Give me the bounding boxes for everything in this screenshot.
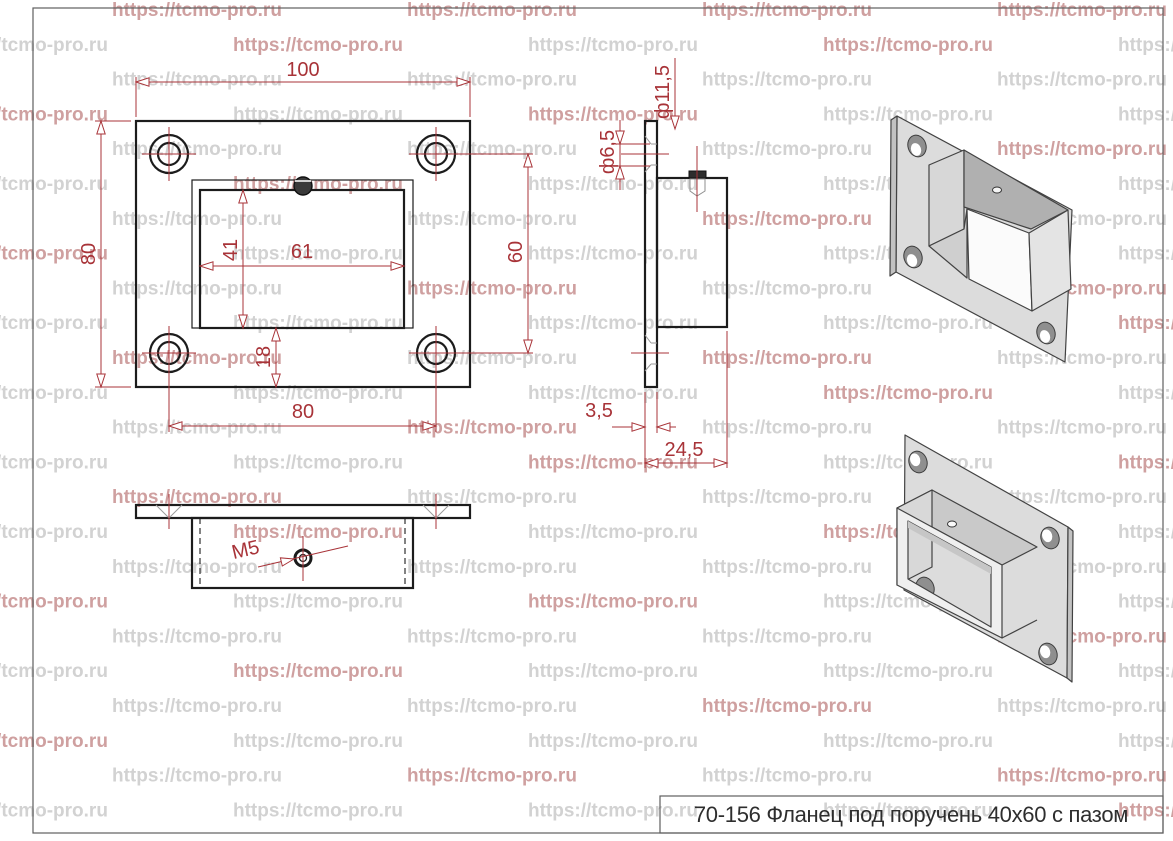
- dim-slot-offset: 18: [253, 346, 275, 368]
- watermark-text: https://tcmo-pro.ru: [0, 383, 108, 404]
- watermark-text: https://tcmo-pro.ru: [233, 800, 403, 821]
- watermark-text: https://tcmo-pro.ru: [233, 522, 403, 543]
- watermark-text: https://tcmo-pro.ru: [112, 766, 282, 787]
- watermark-text: https://tcmo-pro.ru: [528, 35, 698, 56]
- title-text: 70-156 Фланец под поручень 40x60 с пазом: [694, 802, 1128, 827]
- watermark-text: https://tcmo-pro.ru: [233, 174, 403, 195]
- watermark-text: https://tcmo-pro.ru: [407, 348, 577, 369]
- watermark-text: https://tcmo-pro.ru: [528, 661, 698, 682]
- m5-leader-arrow: [280, 555, 295, 566]
- watermark-text: https://tcmo-pro.ru: [0, 174, 108, 195]
- watermark-text: https://tcmo-pro.ru: [407, 418, 577, 439]
- drawing-canvas: https://tcmo-pro.ruhttps://tcmo-pro.ruht…: [0, 0, 1173, 841]
- watermark-text: https://tcmo-pro.ru: [997, 766, 1167, 787]
- watermark-text: https://tcmo-pro.ru: [1118, 383, 1173, 404]
- watermark-text: https://tcmo-pro.ru: [1118, 174, 1173, 195]
- watermark-text: https://tcmo-pro.ru: [0, 522, 108, 543]
- title-block: 70-156 Фланец под поручень 40x60 с пазом: [660, 796, 1163, 833]
- watermark-text: https://tcmo-pro.ru: [1118, 731, 1173, 752]
- dim-overall-height: 80: [78, 243, 100, 265]
- watermark-text: https://tcmo-pro.ru: [528, 592, 698, 613]
- watermark-text: https://tcmo-pro.ru: [112, 696, 282, 717]
- watermark-text: https://tcmo-pro.ru: [702, 139, 872, 160]
- watermark-text: https://tcmo-pro.ru: [702, 766, 872, 787]
- watermark-text: https://tcmo-pro.ru: [1118, 592, 1173, 613]
- watermark-text: https://tcmo-pro.ru: [997, 418, 1167, 439]
- watermark-text: https://tcmo-pro.ru: [702, 0, 872, 21]
- watermark-text: https://tcmo-pro.ru: [233, 104, 403, 125]
- watermark-text: https://tcmo-pro.ru: [823, 731, 993, 752]
- watermark-text: https://tcmo-pro.ru: [1118, 244, 1173, 265]
- watermark-text: https://tcmo-pro.ru: [233, 313, 403, 334]
- watermark-text: https://tcmo-pro.ru: [0, 661, 108, 682]
- watermark-text: https://tcmo-pro.ru: [407, 209, 577, 230]
- watermark-text: https://tcmo-pro.ru: [233, 592, 403, 613]
- watermark-text: https://tcmo-pro.ru: [997, 348, 1167, 369]
- watermark-text: https://tcmo-pro.ru: [0, 313, 108, 334]
- watermark-text: https://tcmo-pro.ru: [0, 592, 108, 613]
- watermark-text: https://tcmo-pro.ru: [233, 35, 403, 56]
- watermark-text: https://tcmo-pro.ru: [997, 0, 1167, 21]
- watermark-text: https://tcmo-pro.ru: [1118, 452, 1173, 473]
- watermark-text: https://tcmo-pro.ru: [233, 452, 403, 473]
- watermark-text: https://tcmo-pro.ru: [112, 70, 282, 91]
- set-screw-front: [294, 177, 312, 195]
- watermark-text: https://tcmo-pro.ru: [823, 313, 993, 334]
- watermark-text: https://tcmo-pro.ru: [0, 800, 108, 821]
- watermark-text: https://tcmo-pro.ru: [0, 35, 108, 56]
- watermark-text: https://tcmo-pro.ru: [702, 557, 872, 578]
- watermark-text: https://tcmo-pro.ru: [407, 139, 577, 160]
- watermark-text: https://tcmo-pro.ru: [407, 278, 577, 299]
- iso1-plate-edge: [890, 116, 897, 276]
- watermark-text: https://tcmo-pro.ru: [1118, 661, 1173, 682]
- watermark-text: https://tcmo-pro.ru: [112, 418, 282, 439]
- watermark-text: https://tcmo-pro.ru: [823, 661, 993, 682]
- watermark-text: https://tcmo-pro.ru: [112, 626, 282, 647]
- watermark-text: https://tcmo-pro.ru: [0, 731, 108, 752]
- watermark-text: https://tcmo-pro.ru: [0, 104, 108, 125]
- watermark-text: https://tcmo-pro.ru: [702, 626, 872, 647]
- dim-plate-thickness: 3,5: [585, 400, 613, 422]
- watermark-text: https://tcmo-pro.ru: [407, 626, 577, 647]
- watermark-text: https://tcmo-pro.ru: [1118, 522, 1173, 543]
- watermark-text: https://tcmo-pro.ru: [702, 487, 872, 508]
- watermark-text: https://tcmo-pro.ru: [233, 731, 403, 752]
- watermark-text: https://tcmo-pro.ru: [1118, 313, 1173, 334]
- dim-overall-width: 100: [286, 59, 319, 81]
- watermark-text: https://tcmo-pro.ru: [823, 35, 993, 56]
- dim-slot-width: 61: [291, 241, 313, 263]
- watermark-text: https://tcmo-pro.ru: [1118, 104, 1173, 125]
- watermark-text: https://tcmo-pro.ru: [112, 139, 282, 160]
- dim-hole-dia: ф6,5: [597, 130, 619, 174]
- watermark-text: https://tcmo-pro.ru: [528, 522, 698, 543]
- watermark-text: https://tcmo-pro.ru: [823, 383, 993, 404]
- watermark-text: https://tcmo-pro.ru: [997, 696, 1167, 717]
- dim-overall-depth: 24,5: [665, 439, 704, 461]
- iso1-m5-hole: [993, 187, 1002, 193]
- watermark-text: https://tcmo-pro.ru: [528, 313, 698, 334]
- watermark-text: https://tcmo-pro.ru: [1118, 35, 1173, 56]
- dim-hole-spacing-h: 80: [292, 401, 314, 423]
- watermark-text: https://tcmo-pro.ru: [407, 0, 577, 21]
- watermark-text: https://tcmo-pro.ru: [407, 696, 577, 717]
- watermark-text: https://tcmo-pro.ru: [0, 452, 108, 473]
- watermark-text: https://tcmo-pro.ru: [112, 0, 282, 21]
- watermark-text: https://tcmo-pro.ru: [528, 731, 698, 752]
- iso2-m5-hole: [948, 521, 957, 527]
- dim-slot-height: 41: [220, 239, 242, 261]
- watermark-text: https://tcmo-pro.ru: [997, 70, 1167, 91]
- dim-hole-spacing-v: 60: [505, 241, 527, 263]
- dim-countersink-dia: ф11,5: [652, 65, 674, 119]
- watermark-text: https://tcmo-pro.ru: [407, 557, 577, 578]
- watermark-text: https://tcmo-pro.ru: [407, 766, 577, 787]
- watermark-text: https://tcmo-pro.ru: [233, 244, 403, 265]
- watermark-text: https://tcmo-pro.ru: [702, 696, 872, 717]
- watermark-text: https://tcmo-pro.ru: [112, 557, 282, 578]
- watermark-text: https://tcmo-pro.ru: [702, 70, 872, 91]
- technical-drawing-page: https://tcmo-pro.ruhttps://tcmo-pro.ruht…: [0, 0, 1173, 841]
- iso2-plate-edge: [1067, 527, 1073, 682]
- watermark-text: https://tcmo-pro.ru: [528, 383, 698, 404]
- watermark-text: https://tcmo-pro.ru: [233, 661, 403, 682]
- watermark-text: https://tcmo-pro.ru: [407, 70, 577, 91]
- watermark-text: https://tcmo-pro.ru: [112, 209, 282, 230]
- watermark-text: https://tcmo-pro.ru: [528, 800, 698, 821]
- watermark-text: https://tcmo-pro.ru: [997, 139, 1167, 160]
- watermark-text: https://tcmo-pro.ru: [528, 244, 698, 265]
- watermark-text: https://tcmo-pro.ru: [112, 278, 282, 299]
